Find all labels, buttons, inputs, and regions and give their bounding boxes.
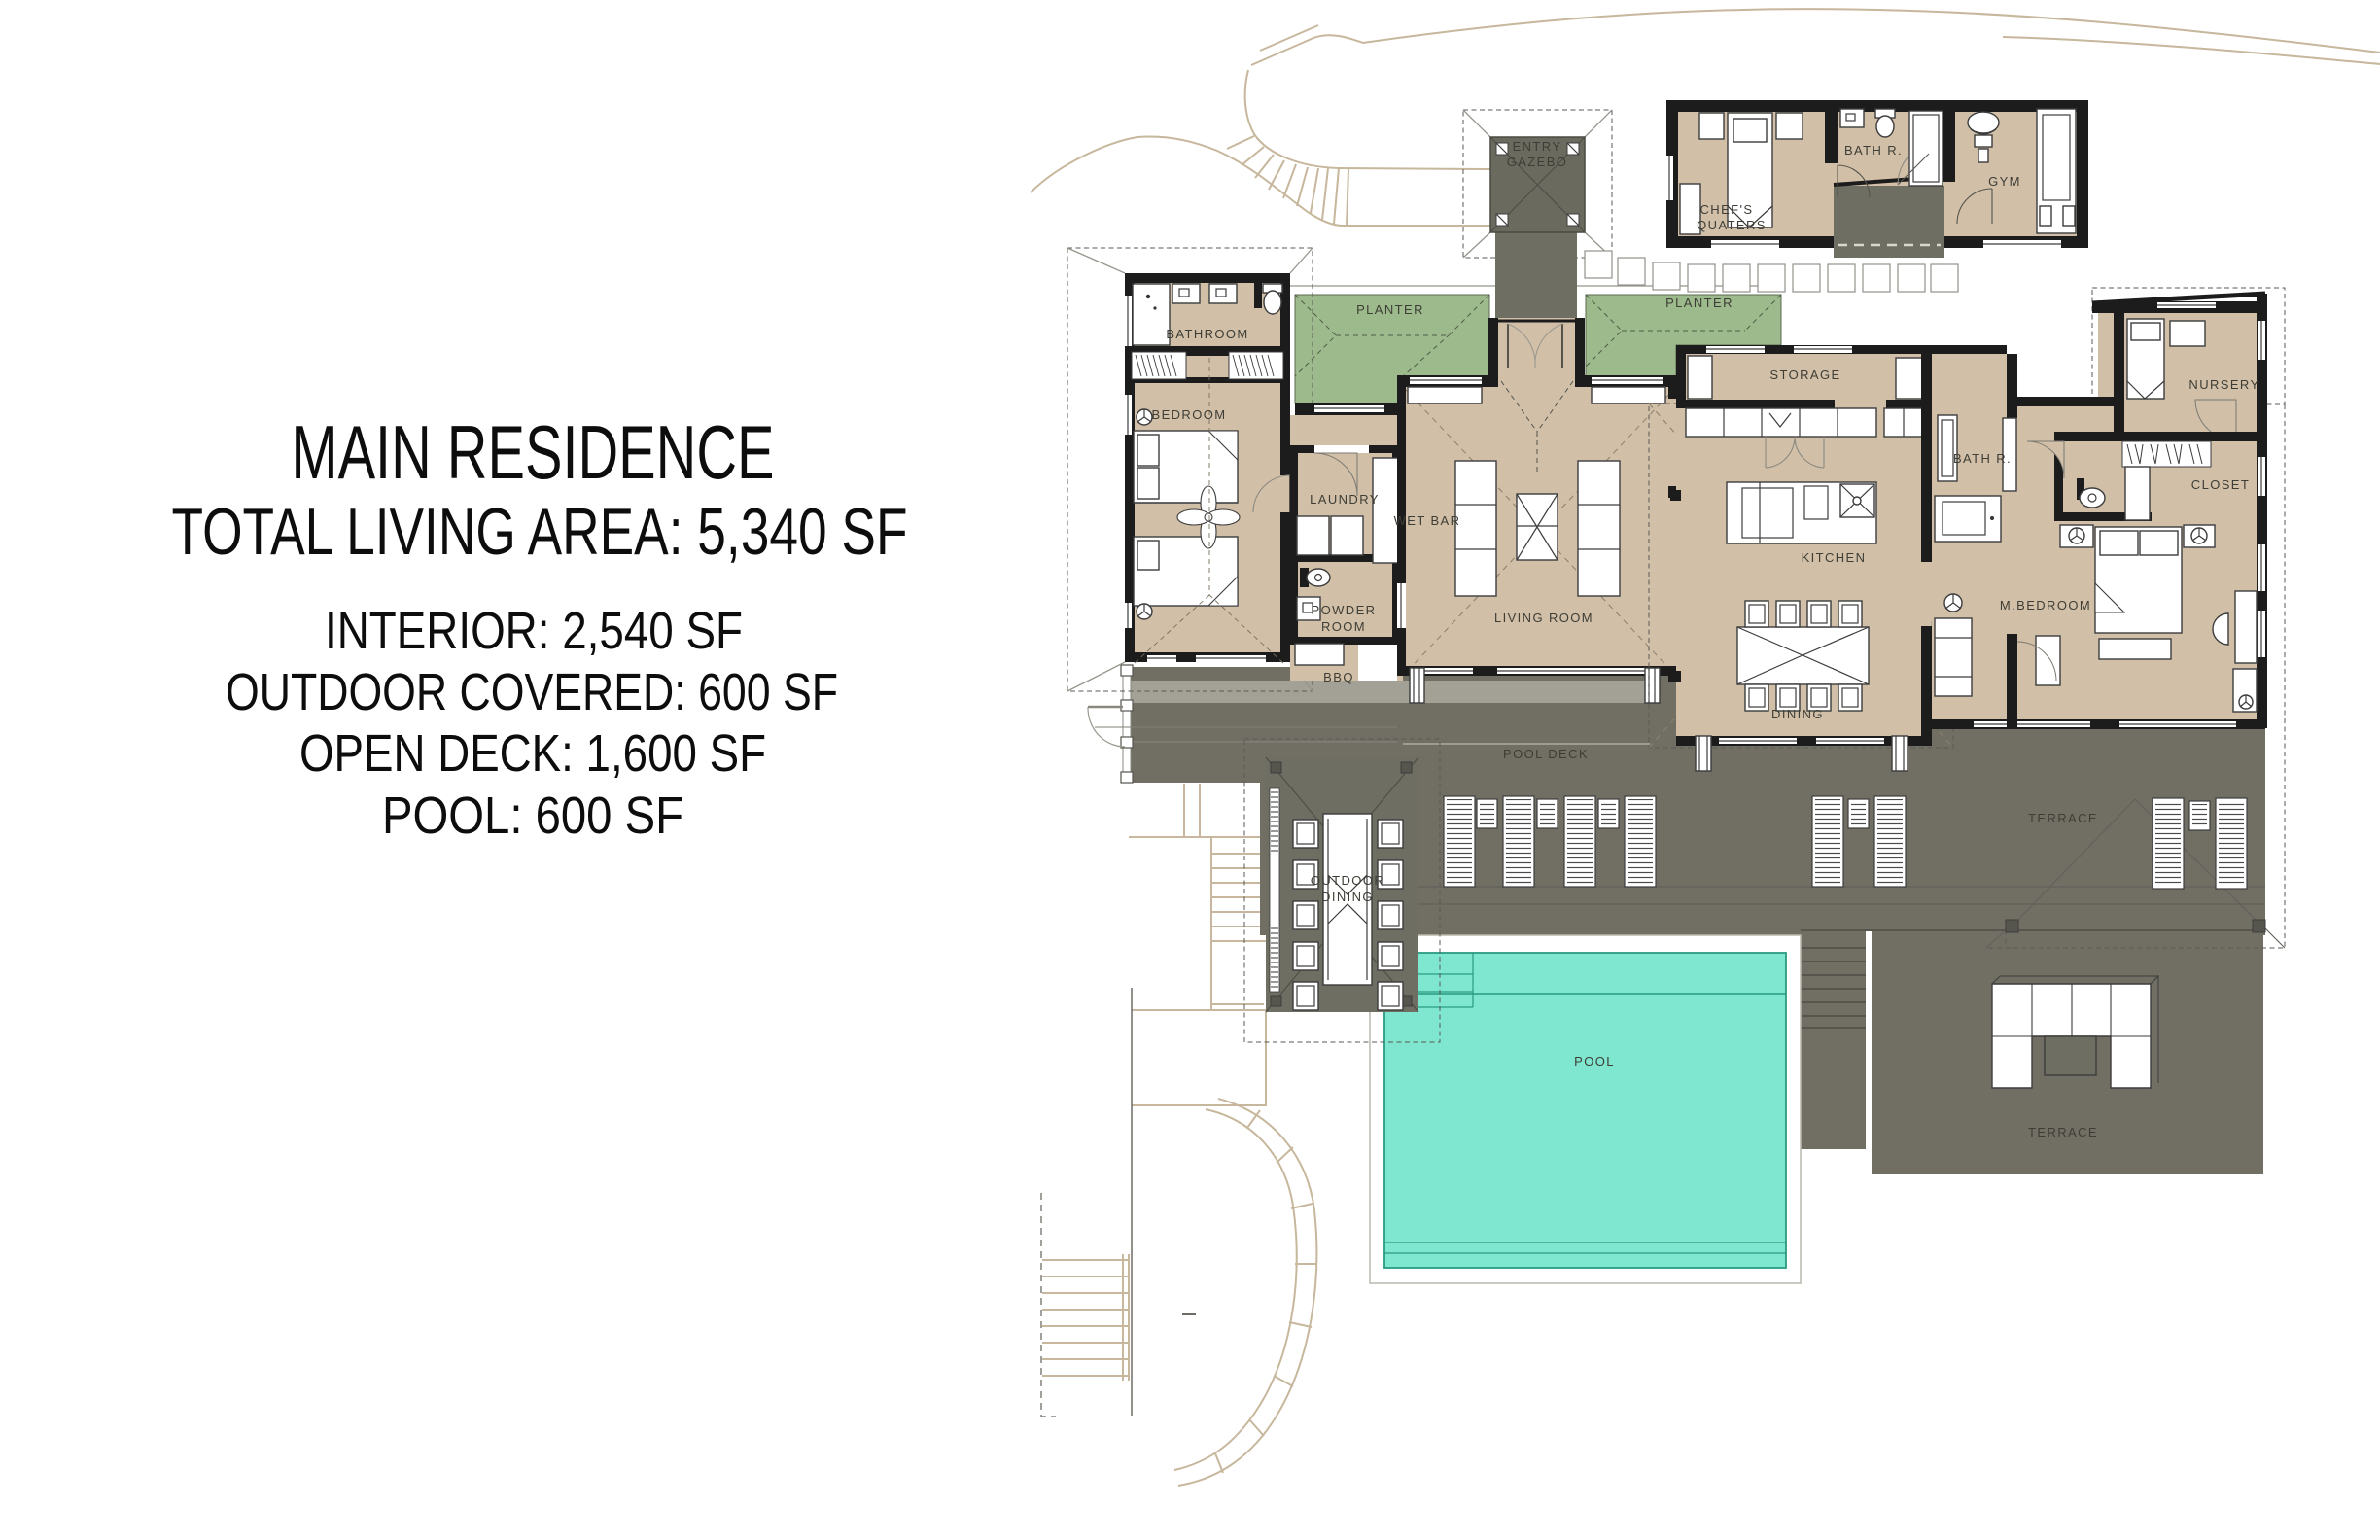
svg-text:BATH R.: BATH R. [1844, 143, 1903, 157]
svg-text:TERRACE: TERRACE [2028, 811, 2098, 825]
svg-text:OUTDOOR: OUTDOOR [1311, 873, 1384, 888]
svg-text:BBQ: BBQ [1323, 670, 1354, 684]
svg-text:BATH R.: BATH R. [1953, 451, 2012, 466]
svg-text:POOL DECK: POOL DECK [1503, 747, 1589, 761]
svg-text:POOL: POOL [1574, 1054, 1615, 1068]
svg-text:ROOM: ROOM [1321, 619, 1366, 634]
svg-text:TERRACE: TERRACE [2028, 1125, 2098, 1139]
svg-text:NURSERY: NURSERY [2188, 377, 2259, 392]
svg-text:POWDER: POWDER [1312, 603, 1377, 617]
svg-text:INTERIOR: 2,540 SF: INTERIOR: 2,540 SF [325, 602, 743, 660]
svg-text:POOL: 600 SF: POOL: 600 SF [382, 787, 683, 845]
svg-text:WET BAR: WET BAR [1394, 513, 1461, 528]
svg-text:GAZEBO: GAZEBO [1507, 155, 1568, 169]
svg-text:DINING: DINING [1321, 890, 1374, 904]
svg-text:OUTDOOR COVERED: 600 SF: OUTDOOR COVERED: 600 SF [226, 663, 838, 721]
svg-text:LAUNDRY: LAUNDRY [1310, 492, 1380, 507]
svg-text:BEDROOM: BEDROOM [1152, 407, 1227, 422]
svg-text:PLANTER: PLANTER [1665, 296, 1733, 310]
svg-text:LIVING ROOM: LIVING ROOM [1494, 611, 1593, 625]
svg-text:ENTRY: ENTRY [1513, 139, 1562, 154]
svg-text:CHEF'S: CHEF'S [1700, 202, 1754, 217]
svg-text:OPEN DECK: 1,600 SF: OPEN DECK: 1,600 SF [299, 724, 766, 783]
svg-text:GYM: GYM [1988, 174, 2021, 189]
svg-text:KITCHEN: KITCHEN [1802, 550, 1867, 565]
svg-text:M.BEDROOM: M.BEDROOM [2000, 598, 2091, 612]
svg-text:BATHROOM: BATHROOM [1166, 327, 1248, 341]
svg-text:MAIN RESIDENCE: MAIN RESIDENCE [292, 409, 775, 495]
svg-text:PLANTER: PLANTER [1356, 302, 1424, 317]
svg-text:TOTAL LIVING AREA: 5,340 SF: TOTAL LIVING AREA: 5,340 SF [172, 495, 908, 569]
svg-text:QUATERS: QUATERS [1697, 218, 1767, 232]
svg-text:CLOSET: CLOSET [2191, 477, 2250, 492]
svg-text:STORAGE: STORAGE [1769, 367, 1840, 382]
svg-text:DINING: DINING [1771, 707, 1824, 721]
